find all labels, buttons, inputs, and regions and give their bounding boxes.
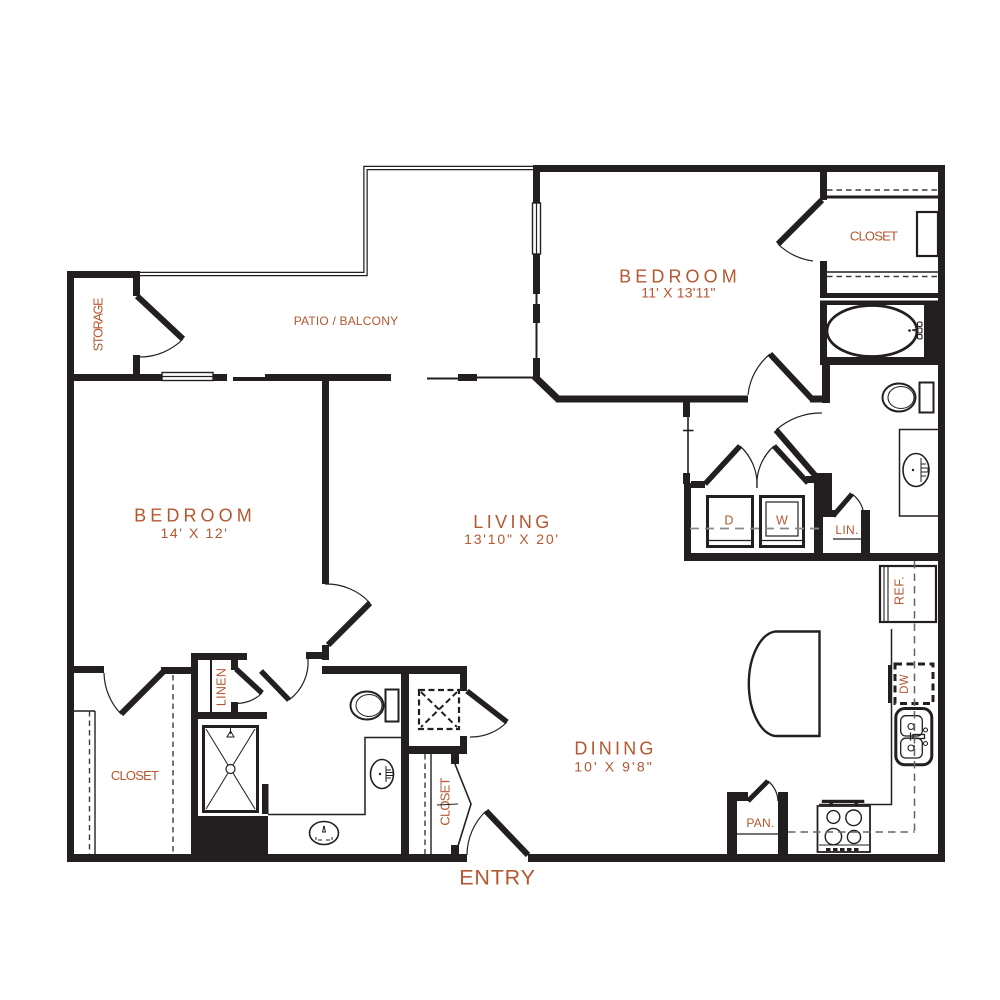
svg-text:CLOSET: CLOSET (437, 778, 452, 826)
svg-text:LIVING: LIVING (473, 512, 552, 532)
svg-text:BEDROOM: BEDROOM (134, 506, 256, 526)
svg-text:ENTRY: ENTRY (459, 866, 535, 890)
svg-text:CLOSET: CLOSET (111, 768, 159, 783)
svg-text:13'10" X 20': 13'10" X 20' (464, 531, 560, 547)
svg-text:D: D (724, 514, 733, 528)
svg-text:CLOSET: CLOSET (850, 229, 898, 244)
svg-text:10' X 9'8": 10' X 9'8" (574, 759, 654, 775)
svg-text:DINING: DINING (574, 739, 656, 759)
svg-text:BEDROOM: BEDROOM (619, 267, 741, 287)
svg-text:PAN.: PAN. (746, 816, 774, 830)
svg-text:LIN.: LIN. (835, 523, 858, 537)
svg-text:14' X 12': 14' X 12' (160, 525, 228, 541)
svg-text:LINEN: LINEN (214, 668, 228, 706)
svg-text:11' X 13'11": 11' X 13'11" (641, 285, 715, 301)
svg-text:W: W (776, 514, 788, 528)
svg-text:PATIO / BALCONY: PATIO / BALCONY (294, 314, 399, 328)
svg-text:REF.: REF. (892, 576, 906, 605)
svg-text:STORAGE: STORAGE (91, 298, 105, 351)
svg-text:DW: DW (899, 674, 911, 694)
